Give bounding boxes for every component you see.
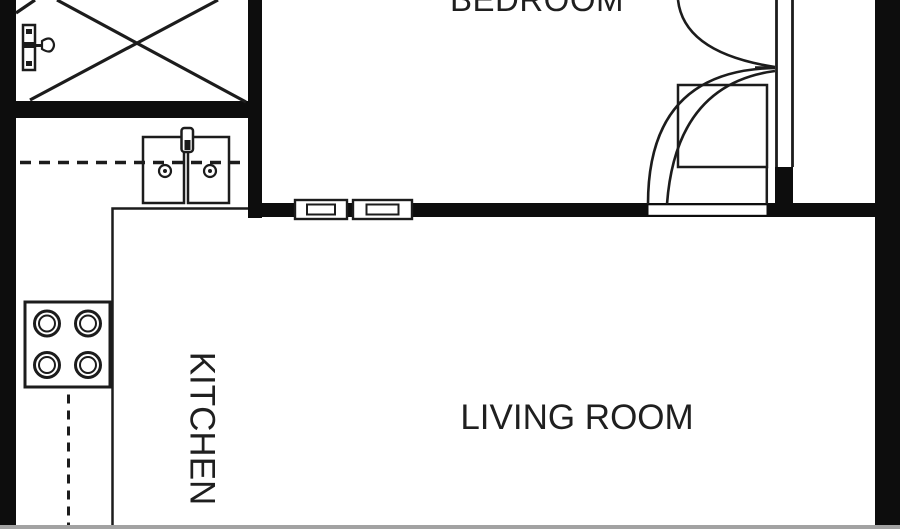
cabinet-dashed-line-bottom — [30, 369, 69, 529]
bedroom-door-opening — [649, 205, 767, 215]
screenshot-bottom-edge — [0, 525, 900, 529]
wall-right-outer — [875, 0, 900, 529]
window-symbol-1 — [295, 200, 347, 219]
wall-closet-bottom — [0, 101, 262, 118]
bedroom-door-swing — [648, 68, 775, 204]
floorplan-drawing — [0, 0, 900, 529]
wall-valve-icon — [23, 25, 54, 70]
wall-kitchen-bedroom-divider — [248, 0, 262, 218]
pocket-wall — [777, 0, 793, 167]
stove-icon — [25, 302, 110, 387]
bedroom-label: BEDROOM — [450, 0, 622, 16]
entry-door-swing — [678, 0, 775, 68]
counter-edge-line — [113, 209, 249, 529]
floor-plan: BEDROOM LIVING ROOM KITCHEN — [0, 0, 900, 529]
sink-drain-left — [159, 165, 171, 177]
sink-drain-right — [204, 165, 216, 177]
living-room-label: LIVING ROOM — [460, 400, 694, 435]
sink-faucet-icon — [182, 128, 194, 152]
kitchen-sink-icon — [143, 128, 229, 203]
wall-pocket-stub — [775, 167, 793, 217]
window-symbol-2 — [353, 200, 412, 219]
closet-outline — [678, 85, 767, 204]
kitchen-label: KITCHEN — [185, 352, 220, 506]
walls — [0, 0, 900, 529]
wall-left-outer — [0, 0, 16, 529]
